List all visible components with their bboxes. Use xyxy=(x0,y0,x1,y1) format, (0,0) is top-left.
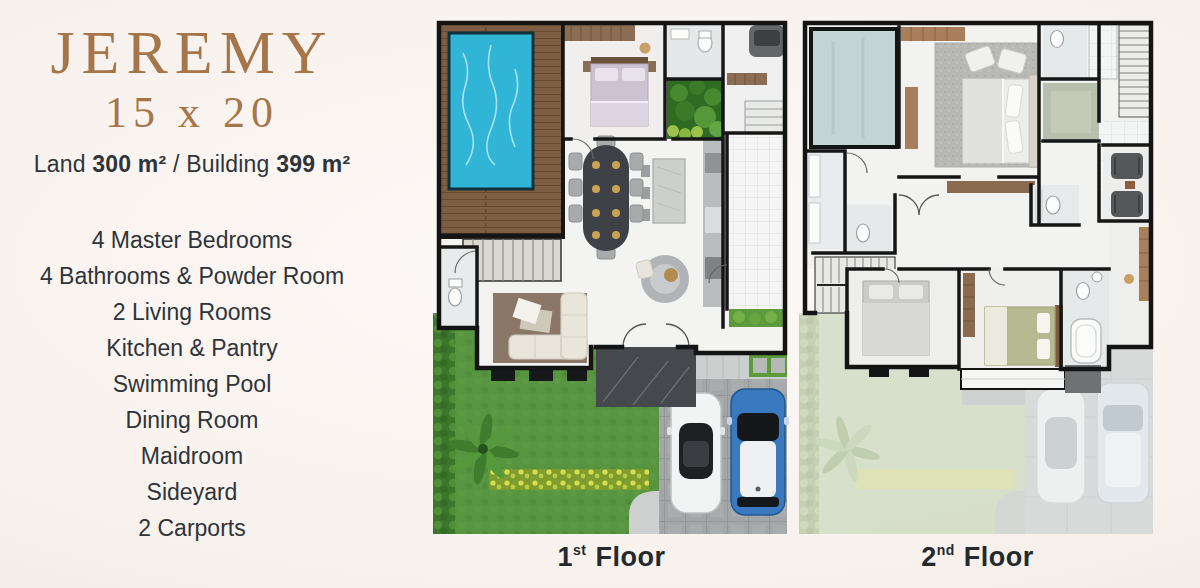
pool-void xyxy=(811,29,897,147)
feature-item: Kitchen & Pantry xyxy=(6,330,378,366)
ensuite-bathroom xyxy=(1043,25,1117,79)
feature-item: 2 Living Rooms xyxy=(6,294,378,330)
plan-title: JEREMY xyxy=(6,20,378,84)
brochure: JEREMY 15 x 20 Land 300 m² / Building 39… xyxy=(0,0,1200,588)
first-floor-drawing xyxy=(433,17,790,534)
master-console xyxy=(947,181,1035,193)
bed-olive xyxy=(985,305,1063,367)
wardrobe xyxy=(563,25,635,41)
round-table xyxy=(664,268,678,282)
study-chairs-room xyxy=(1103,145,1151,221)
second-floor-drawing xyxy=(799,17,1156,534)
bedroom-2f-left xyxy=(847,269,957,377)
land-label: Land xyxy=(34,151,86,177)
hall-bathroom xyxy=(847,205,891,251)
corridor-right xyxy=(1109,221,1151,347)
area-line: Land 300 m² / Building 399 m² xyxy=(6,151,378,178)
first-floor-plan: 1stFloor xyxy=(433,17,790,573)
planter-boxes xyxy=(491,370,587,381)
balcony xyxy=(961,369,1065,389)
feature-item: Swimming Pool xyxy=(6,366,378,402)
courtyard-garden xyxy=(667,79,725,140)
living-room xyxy=(493,293,587,363)
feature-item: Dining Room xyxy=(6,402,378,438)
feature-item: 2 Carports xyxy=(6,510,378,546)
building-value: 399 m² xyxy=(276,151,350,177)
hedge xyxy=(433,315,455,534)
bedroom-2f-middle xyxy=(959,269,1063,369)
sofa-chaise xyxy=(561,293,587,359)
powder-room xyxy=(441,247,477,327)
utility-room xyxy=(723,25,785,133)
area-separator: / xyxy=(173,151,180,177)
feature-list: 4 Master Bedrooms 4 Bathrooms & Powder R… xyxy=(6,222,378,546)
building-label: Building xyxy=(186,151,269,177)
second-floor-plan: 2ndFloor xyxy=(799,17,1156,573)
bathroom-2f xyxy=(1063,269,1109,369)
sideyard xyxy=(727,133,785,327)
stool xyxy=(640,43,651,54)
flower-bed xyxy=(489,469,649,490)
bedroom-1f xyxy=(563,25,665,139)
first-floor-label: 1stFloor xyxy=(433,542,790,573)
feature-item: 4 Master Bedrooms xyxy=(6,222,378,258)
feature-item: Maidroom xyxy=(6,438,378,474)
kitchen-island xyxy=(653,159,685,223)
land-value: 300 m² xyxy=(92,151,166,177)
ghost-car-white xyxy=(1037,389,1085,503)
stone-patio xyxy=(596,347,696,407)
dining-table xyxy=(583,145,629,251)
second-floor-label: 2ndFloor xyxy=(799,542,1156,573)
info-panel: JEREMY 15 x 20 Land 300 m² / Building 39… xyxy=(6,0,378,546)
feature-item: 4 Bathrooms & Powder Room xyxy=(6,258,378,294)
walkin-room xyxy=(1043,83,1099,141)
ghost-car-suv xyxy=(1097,383,1149,503)
master-bed xyxy=(963,75,1039,167)
plan-size: 15 x 20 xyxy=(6,87,378,138)
closet-room xyxy=(807,151,845,249)
bathroom-1f xyxy=(667,25,721,77)
white-car xyxy=(667,393,725,513)
stairs-upper xyxy=(1119,25,1151,117)
swimming-pool xyxy=(449,33,533,189)
blue-car xyxy=(727,389,789,515)
bed-1f xyxy=(591,57,648,126)
feature-item: Sideyard xyxy=(6,474,378,510)
bed-gray xyxy=(863,281,929,355)
master-bench xyxy=(905,87,918,149)
